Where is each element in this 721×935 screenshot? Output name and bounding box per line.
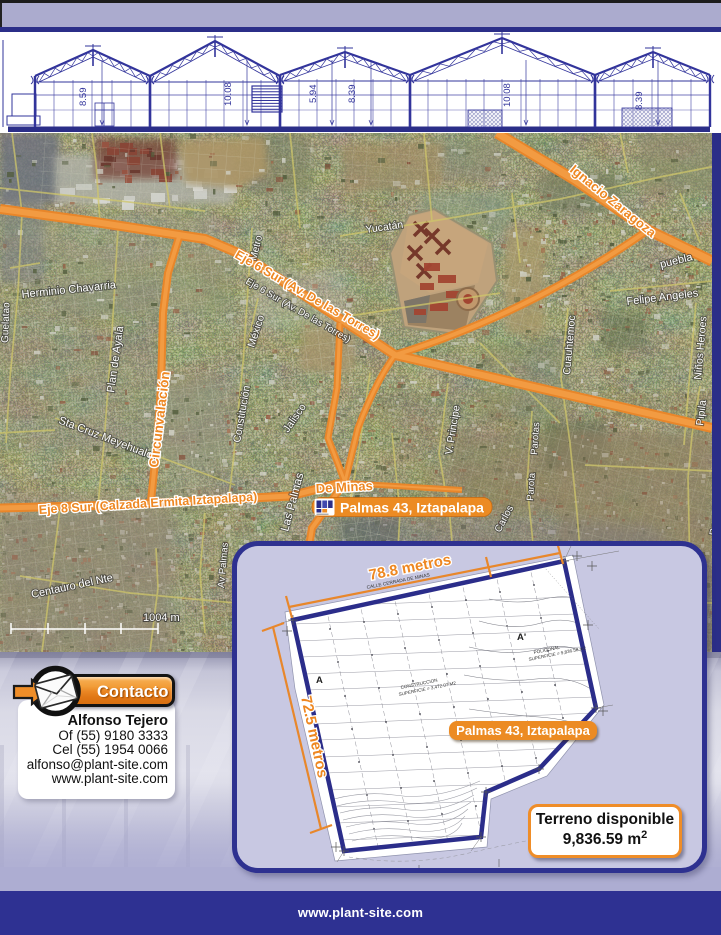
svg-text:8.39: 8.39 [634,92,645,111]
svg-text:Palmas 43, Iztapalapa: Palmas 43, Iztapalapa [340,500,484,516]
svg-text:10.08: 10.08 [502,83,513,107]
svg-text:De Minas: De Minas [315,478,373,496]
svg-text:8.59: 8.59 [78,88,89,107]
svg-text:1004 m: 1004 m [143,612,180,624]
svg-text:Guelatao: Guelatao [0,302,12,343]
svg-text:A': A' [517,632,526,643]
svg-text:5.94: 5.94 [308,85,319,104]
svg-text:A: A [316,675,323,686]
svg-text:8.39: 8.39 [347,85,358,104]
svg-text:10.08: 10.08 [223,82,234,106]
svg-text:Parota: Parota [525,472,538,501]
svg-text:Parotas: Parotas [529,422,542,456]
